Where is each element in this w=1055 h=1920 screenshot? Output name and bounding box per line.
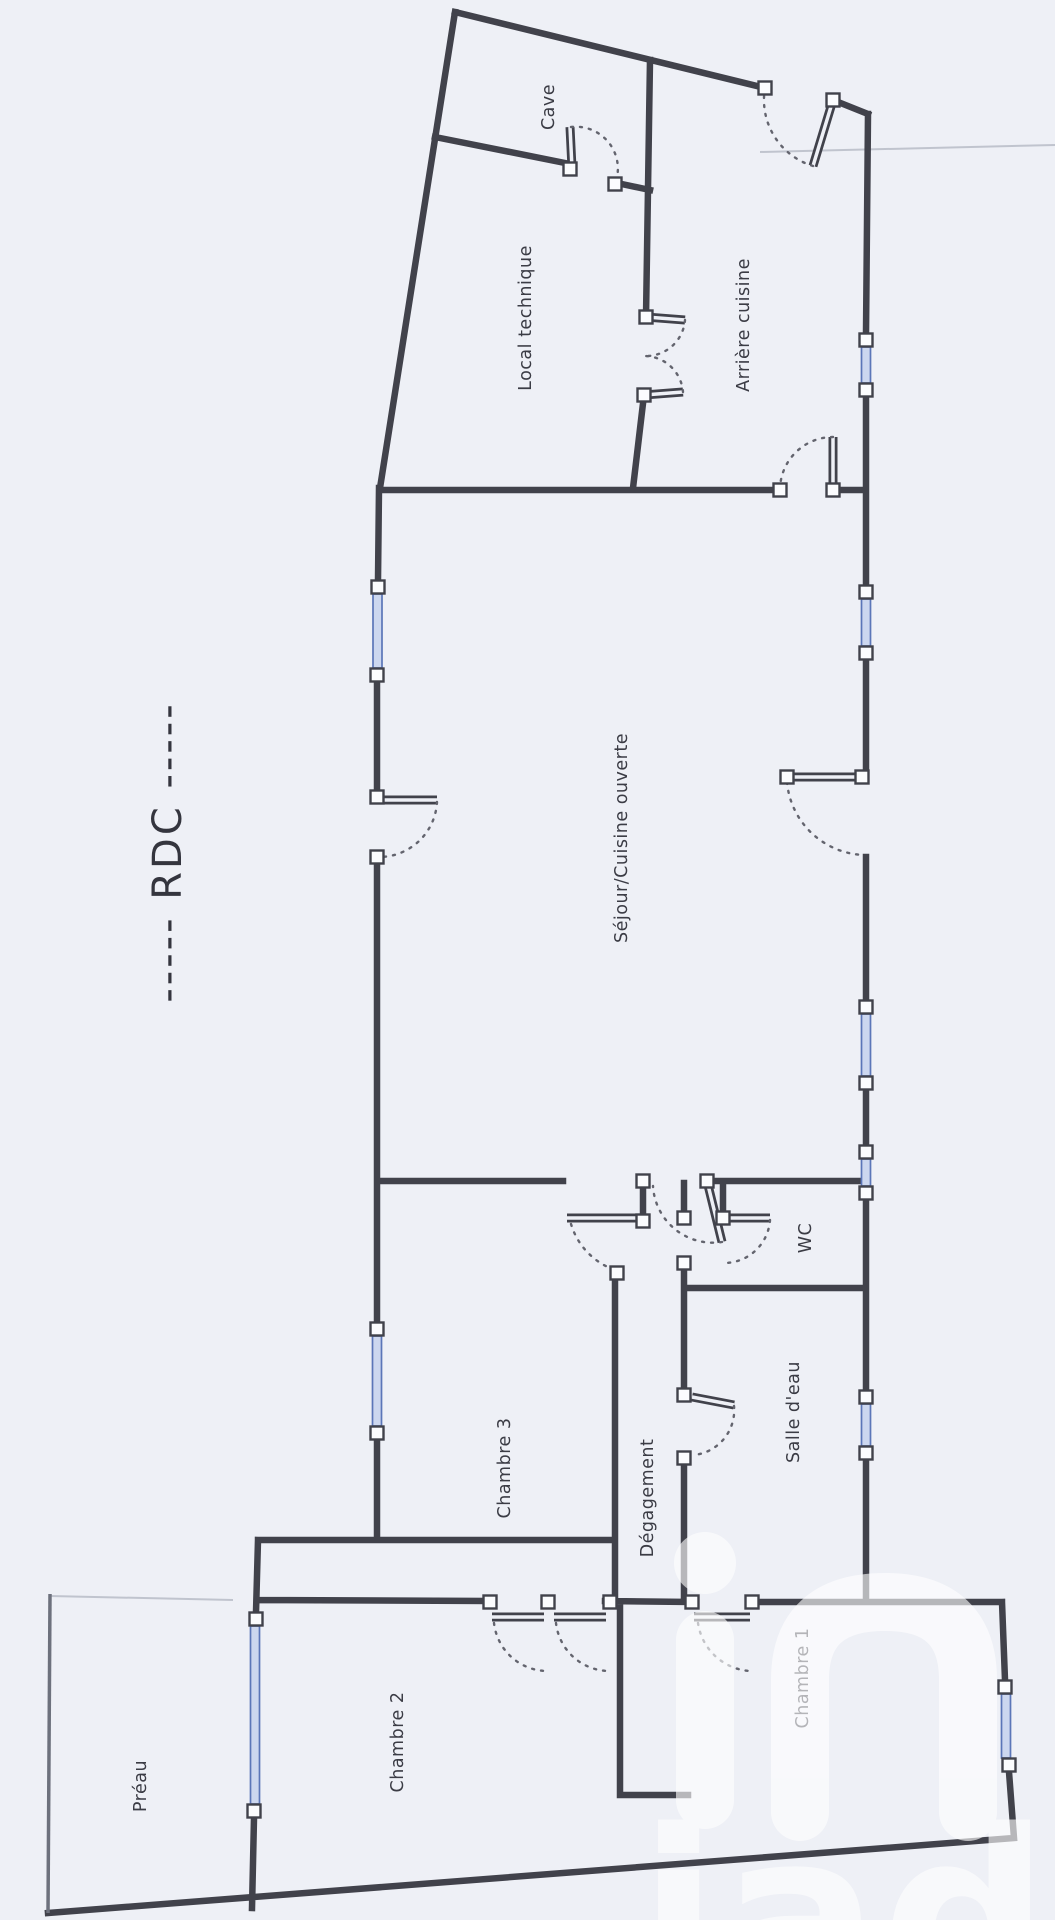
room-label-wc: WC — [796, 1223, 816, 1254]
preau-boundary-line — [48, 1594, 50, 1913]
room-label-salle-deau: Salle d'eau — [784, 1361, 804, 1463]
room-label-degagement: Dégagement — [638, 1439, 658, 1558]
watermark-brand-text: iad — [638, 1781, 1051, 1920]
room-label-cave: Cave — [539, 84, 559, 130]
room-label-arriere-cuisine: Arrière cuisine — [734, 258, 754, 392]
room-label-sejour-cuisine-ouverte: Séjour/Cuisine ouverte — [612, 733, 632, 943]
watermark-logo-i-dot — [674, 1532, 736, 1594]
room-label-chambre-2: Chambre 2 — [388, 1692, 408, 1793]
floor-plan-svg: Cave Local technique Arrière cuisine Séj… — [0, 0, 1055, 1920]
scanned-floor-plan-page: Cave Local technique Arrière cuisine Séj… — [0, 0, 1055, 1920]
room-label-local-technique: Local technique — [516, 245, 536, 391]
floor-label-rdc: ----- RDC ----- — [145, 701, 191, 1002]
room-label-chambre-3: Chambre 3 — [495, 1418, 515, 1519]
room-label-preau: Préau — [131, 1760, 151, 1812]
